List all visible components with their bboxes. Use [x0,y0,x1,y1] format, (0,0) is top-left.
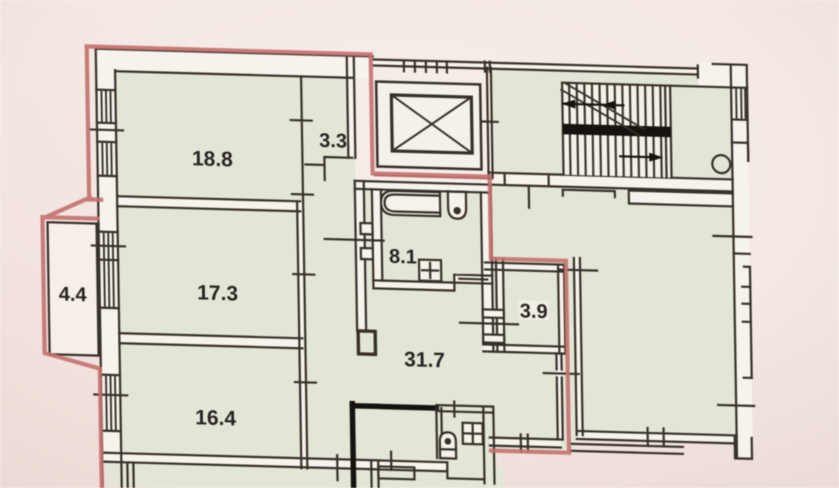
svg-text:4.4: 4.4 [59,284,88,307]
svg-text:17.3: 17.3 [197,281,238,305]
svg-text:3.3: 3.3 [319,130,347,153]
svg-text:31.7: 31.7 [404,348,445,372]
svg-text:16.4: 16.4 [195,406,237,430]
svg-text:18.8: 18.8 [192,147,234,171]
svg-text:3.9: 3.9 [520,300,548,323]
svg-text:8.1: 8.1 [389,246,417,269]
